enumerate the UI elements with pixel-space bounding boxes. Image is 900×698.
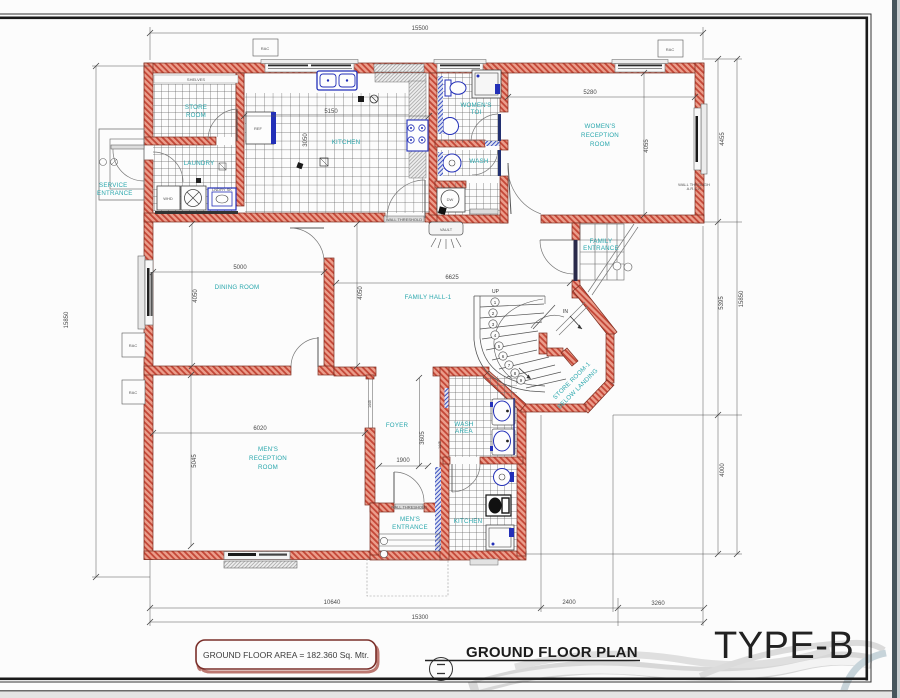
svg-text:MEN'S: MEN'S [258,446,278,453]
svg-text:3260: 3260 [651,601,665,607]
svg-text:15500: 15500 [412,26,429,32]
svg-text:RAC: RAC [666,47,675,52]
svg-text:FAMILY: FAMILY [590,238,613,245]
svg-text:GROUND FLOOR PLAN: GROUND FLOOR PLAN [466,644,638,661]
svg-text:ENTRANCE: ENTRANCE [97,190,133,197]
svg-text:3605: 3605 [420,431,426,445]
svg-text:4455: 4455 [720,132,726,146]
svg-text:3050: 3050 [303,133,309,147]
svg-text:WASH: WASH [454,421,473,428]
svg-text:RECEPTION: RECEPTION [249,455,287,462]
svg-text:4050: 4050 [193,289,199,303]
svg-text:RAC: RAC [129,343,138,348]
svg-text:TOI: TOI [471,109,482,116]
svg-text:FAMILY HALL-1: FAMILY HALL-1 [405,294,452,301]
svg-text:5000: 5000 [233,265,247,271]
svg-text:RAC: RAC [261,46,270,51]
svg-text:ENTRANCE: ENTRANCE [583,245,619,252]
svg-text:LNDRY SK: LNDRY SK [212,187,232,192]
svg-text:1445: 1445 [368,400,372,408]
svg-text:5280: 5280 [583,90,597,96]
svg-text:RECEPTION: RECEPTION [581,132,619,139]
svg-text:DINING ROOM: DINING ROOM [215,284,260,291]
svg-text:6625: 6625 [445,275,459,281]
svg-text:WHD: WHD [163,196,173,201]
svg-text:4055: 4055 [644,139,650,153]
svg-text:GROUND FLOOR AREA = 182.360 Sq: GROUND FLOOR AREA = 182.360 Sq. Mtr. [203,650,369,660]
svg-text:MEN'S: MEN'S [400,516,420,523]
svg-text:DW: DW [447,197,454,202]
svg-text:1445: 1445 [438,441,442,449]
svg-text:ROOM: ROOM [258,464,278,471]
svg-text:ROOM: ROOM [590,141,610,148]
svg-text:4000: 4000 [720,463,726,477]
svg-text:WOMEN'S: WOMEN'S [584,123,615,130]
svg-text:KITCHEN: KITCHEN [454,518,483,525]
svg-text:ROOM: ROOM [186,112,206,119]
svg-text:AREA: AREA [455,428,473,435]
svg-text:15300: 15300 [412,615,429,621]
svg-text:REF: REF [254,126,263,131]
svg-text:5045: 5045 [192,454,198,468]
svg-text:5150: 5150 [324,109,338,115]
svg-text:2400: 2400 [562,600,576,606]
svg-text:15850: 15850 [64,311,70,328]
svg-text:4050: 4050 [358,286,364,300]
svg-text:IN: IN [563,309,568,315]
svg-text:ENTRANCE: ENTRANCE [392,524,428,531]
svg-text:WALL THRESHOLD: WALL THRESHOLD [391,505,427,510]
svg-text:1900: 1900 [396,458,410,464]
svg-text:LAUNDRY: LAUNDRY [184,160,215,167]
svg-text:10640: 10640 [324,600,341,606]
svg-text:UP: UP [492,289,500,295]
svg-text:6020: 6020 [253,426,267,432]
svg-text:KITCHEN: KITCHEN [332,139,361,146]
svg-text:SHELVES: SHELVES [187,77,205,82]
svg-text:STORE: STORE [185,104,207,111]
svg-text:TYPE-B: TYPE-B [714,625,854,667]
svg-text:WALL THRESHOLD: WALL THRESHOLD [386,217,422,222]
svg-text:WASH: WASH [469,158,488,165]
svg-text:RAC: RAC [129,390,138,395]
svg-text:5395: 5395 [719,296,725,310]
svg-text:SERVICE: SERVICE [99,182,127,189]
svg-text:A.R.C.H: A.R.C.H [687,186,702,191]
svg-text:15850: 15850 [739,290,745,307]
svg-text:FOYER: FOYER [386,422,409,429]
svg-text:WOMEN'S: WOMEN'S [460,102,491,109]
svg-text:VAULT: VAULT [440,227,453,232]
